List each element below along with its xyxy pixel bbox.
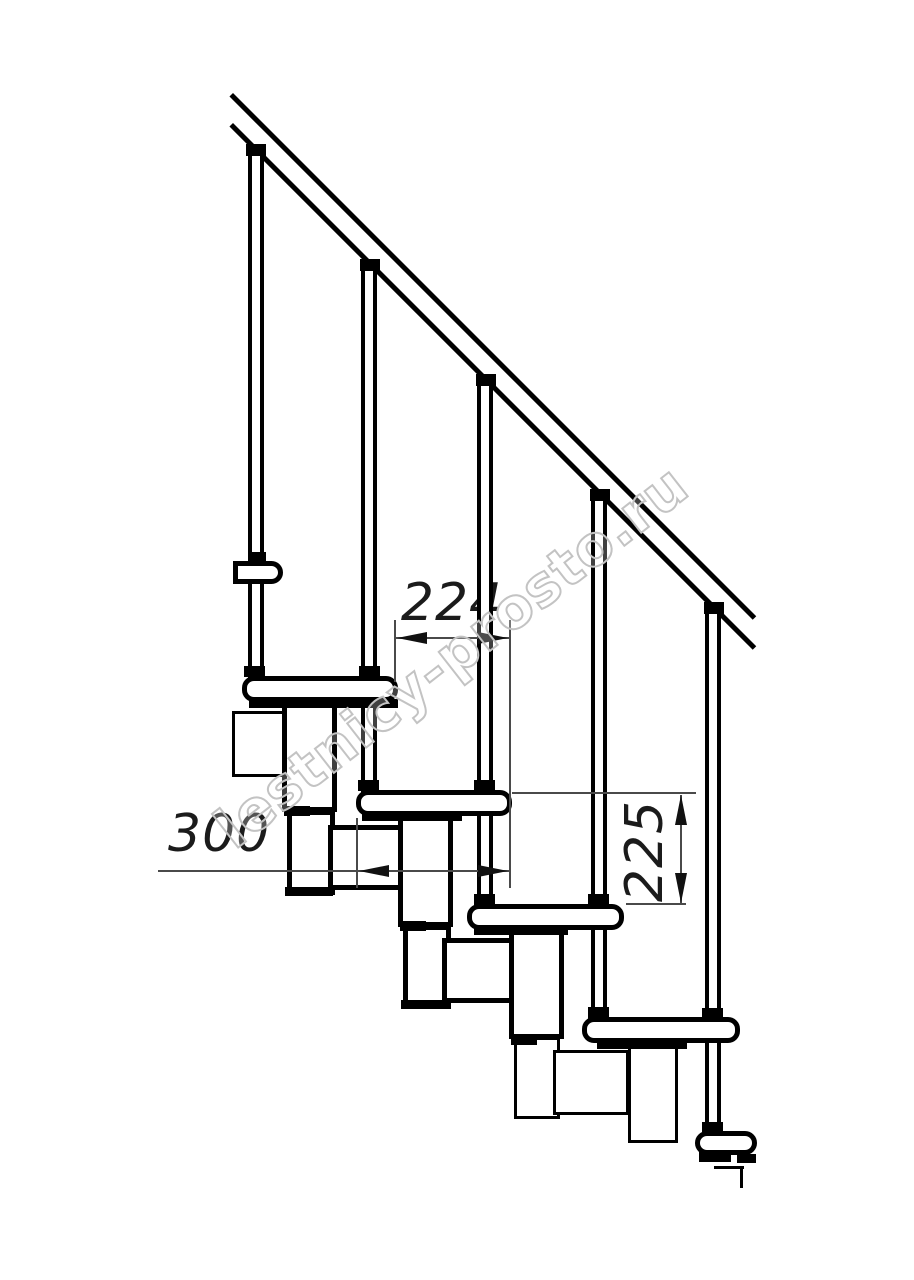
baluster-1 xyxy=(248,150,264,680)
collar-t2-right xyxy=(474,780,495,791)
collar-t5 xyxy=(702,1122,723,1132)
baluster-3-rail-cap xyxy=(476,374,496,386)
dim300-arrow-left xyxy=(359,865,389,877)
dim300-line xyxy=(158,870,510,872)
dim225-arrow-top xyxy=(675,795,687,825)
baluster-5 xyxy=(705,609,721,1134)
dim-shared-ext-right xyxy=(509,620,511,888)
module-joint-1b xyxy=(285,887,333,896)
baluster-5-rail-cap xyxy=(704,602,724,614)
collar-t3-left xyxy=(474,894,495,905)
collar-t2-left xyxy=(358,780,379,791)
tread-2-strip xyxy=(362,813,462,821)
dim300-arrow-right xyxy=(478,865,508,877)
module-square-2 xyxy=(442,938,518,1003)
tread-3-strip xyxy=(474,927,568,935)
collar-t4-right xyxy=(702,1008,723,1020)
wall-bracket xyxy=(233,561,283,584)
module-joint-3a xyxy=(511,1035,537,1045)
dim300-ext-left xyxy=(356,818,358,888)
dim225-ext-bottom xyxy=(626,903,686,905)
dim225-arrow-bottom xyxy=(675,873,687,903)
module-square-3 xyxy=(553,1050,629,1115)
tread-5-foot-a xyxy=(699,1152,731,1162)
collar-t1-left xyxy=(244,666,265,677)
dimension-label-225: 225 xyxy=(615,800,675,902)
module-joint-2b xyxy=(401,1000,449,1009)
module-joint-2a xyxy=(400,921,426,931)
step-profile-v xyxy=(740,1166,743,1188)
dim225-ext-top xyxy=(512,792,696,794)
baluster-1-rail-cap xyxy=(246,144,266,156)
module-tall-3 xyxy=(509,929,564,1039)
tread-4-strip xyxy=(597,1041,687,1049)
tread-5-foot-b xyxy=(737,1154,756,1163)
tread-4 xyxy=(582,1017,740,1043)
collar-t4-left xyxy=(588,1007,609,1019)
module-square-1 xyxy=(328,825,404,890)
baluster-2-rail-cap xyxy=(360,259,380,271)
technical-drawing-canvas: 224 300 225 lestnicy-prosto.ru xyxy=(0,0,914,1280)
module-tall-4 xyxy=(628,1043,678,1143)
collar-t3-right xyxy=(588,894,609,905)
